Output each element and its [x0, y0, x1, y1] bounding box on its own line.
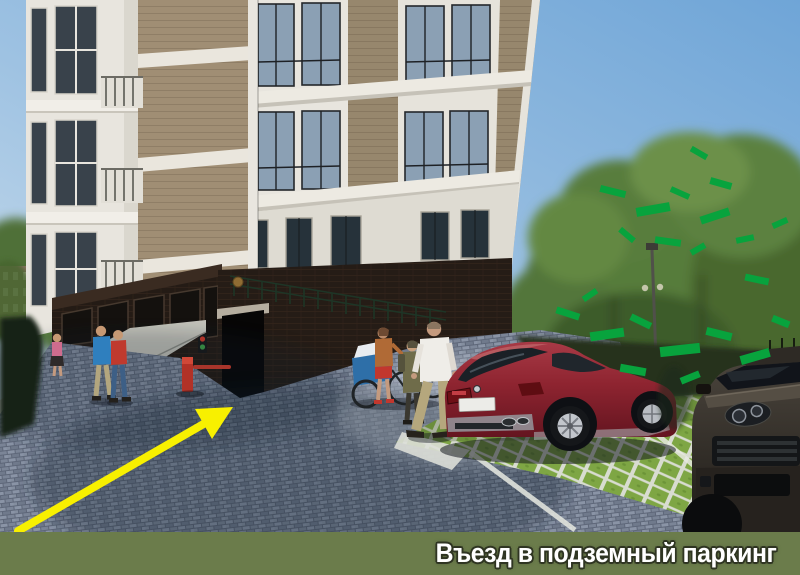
building-right-face — [248, 0, 540, 298]
wall-emblem — [233, 277, 243, 287]
caption-banner: Въезд в подземный паркинг — [0, 532, 800, 575]
license-plate — [459, 397, 495, 411]
caption-text: Въезд в подземный паркинг — [435, 538, 776, 569]
rendered-scene — [0, 0, 800, 532]
screenshot-root: Въезд в подземный паркинг — [0, 0, 800, 575]
